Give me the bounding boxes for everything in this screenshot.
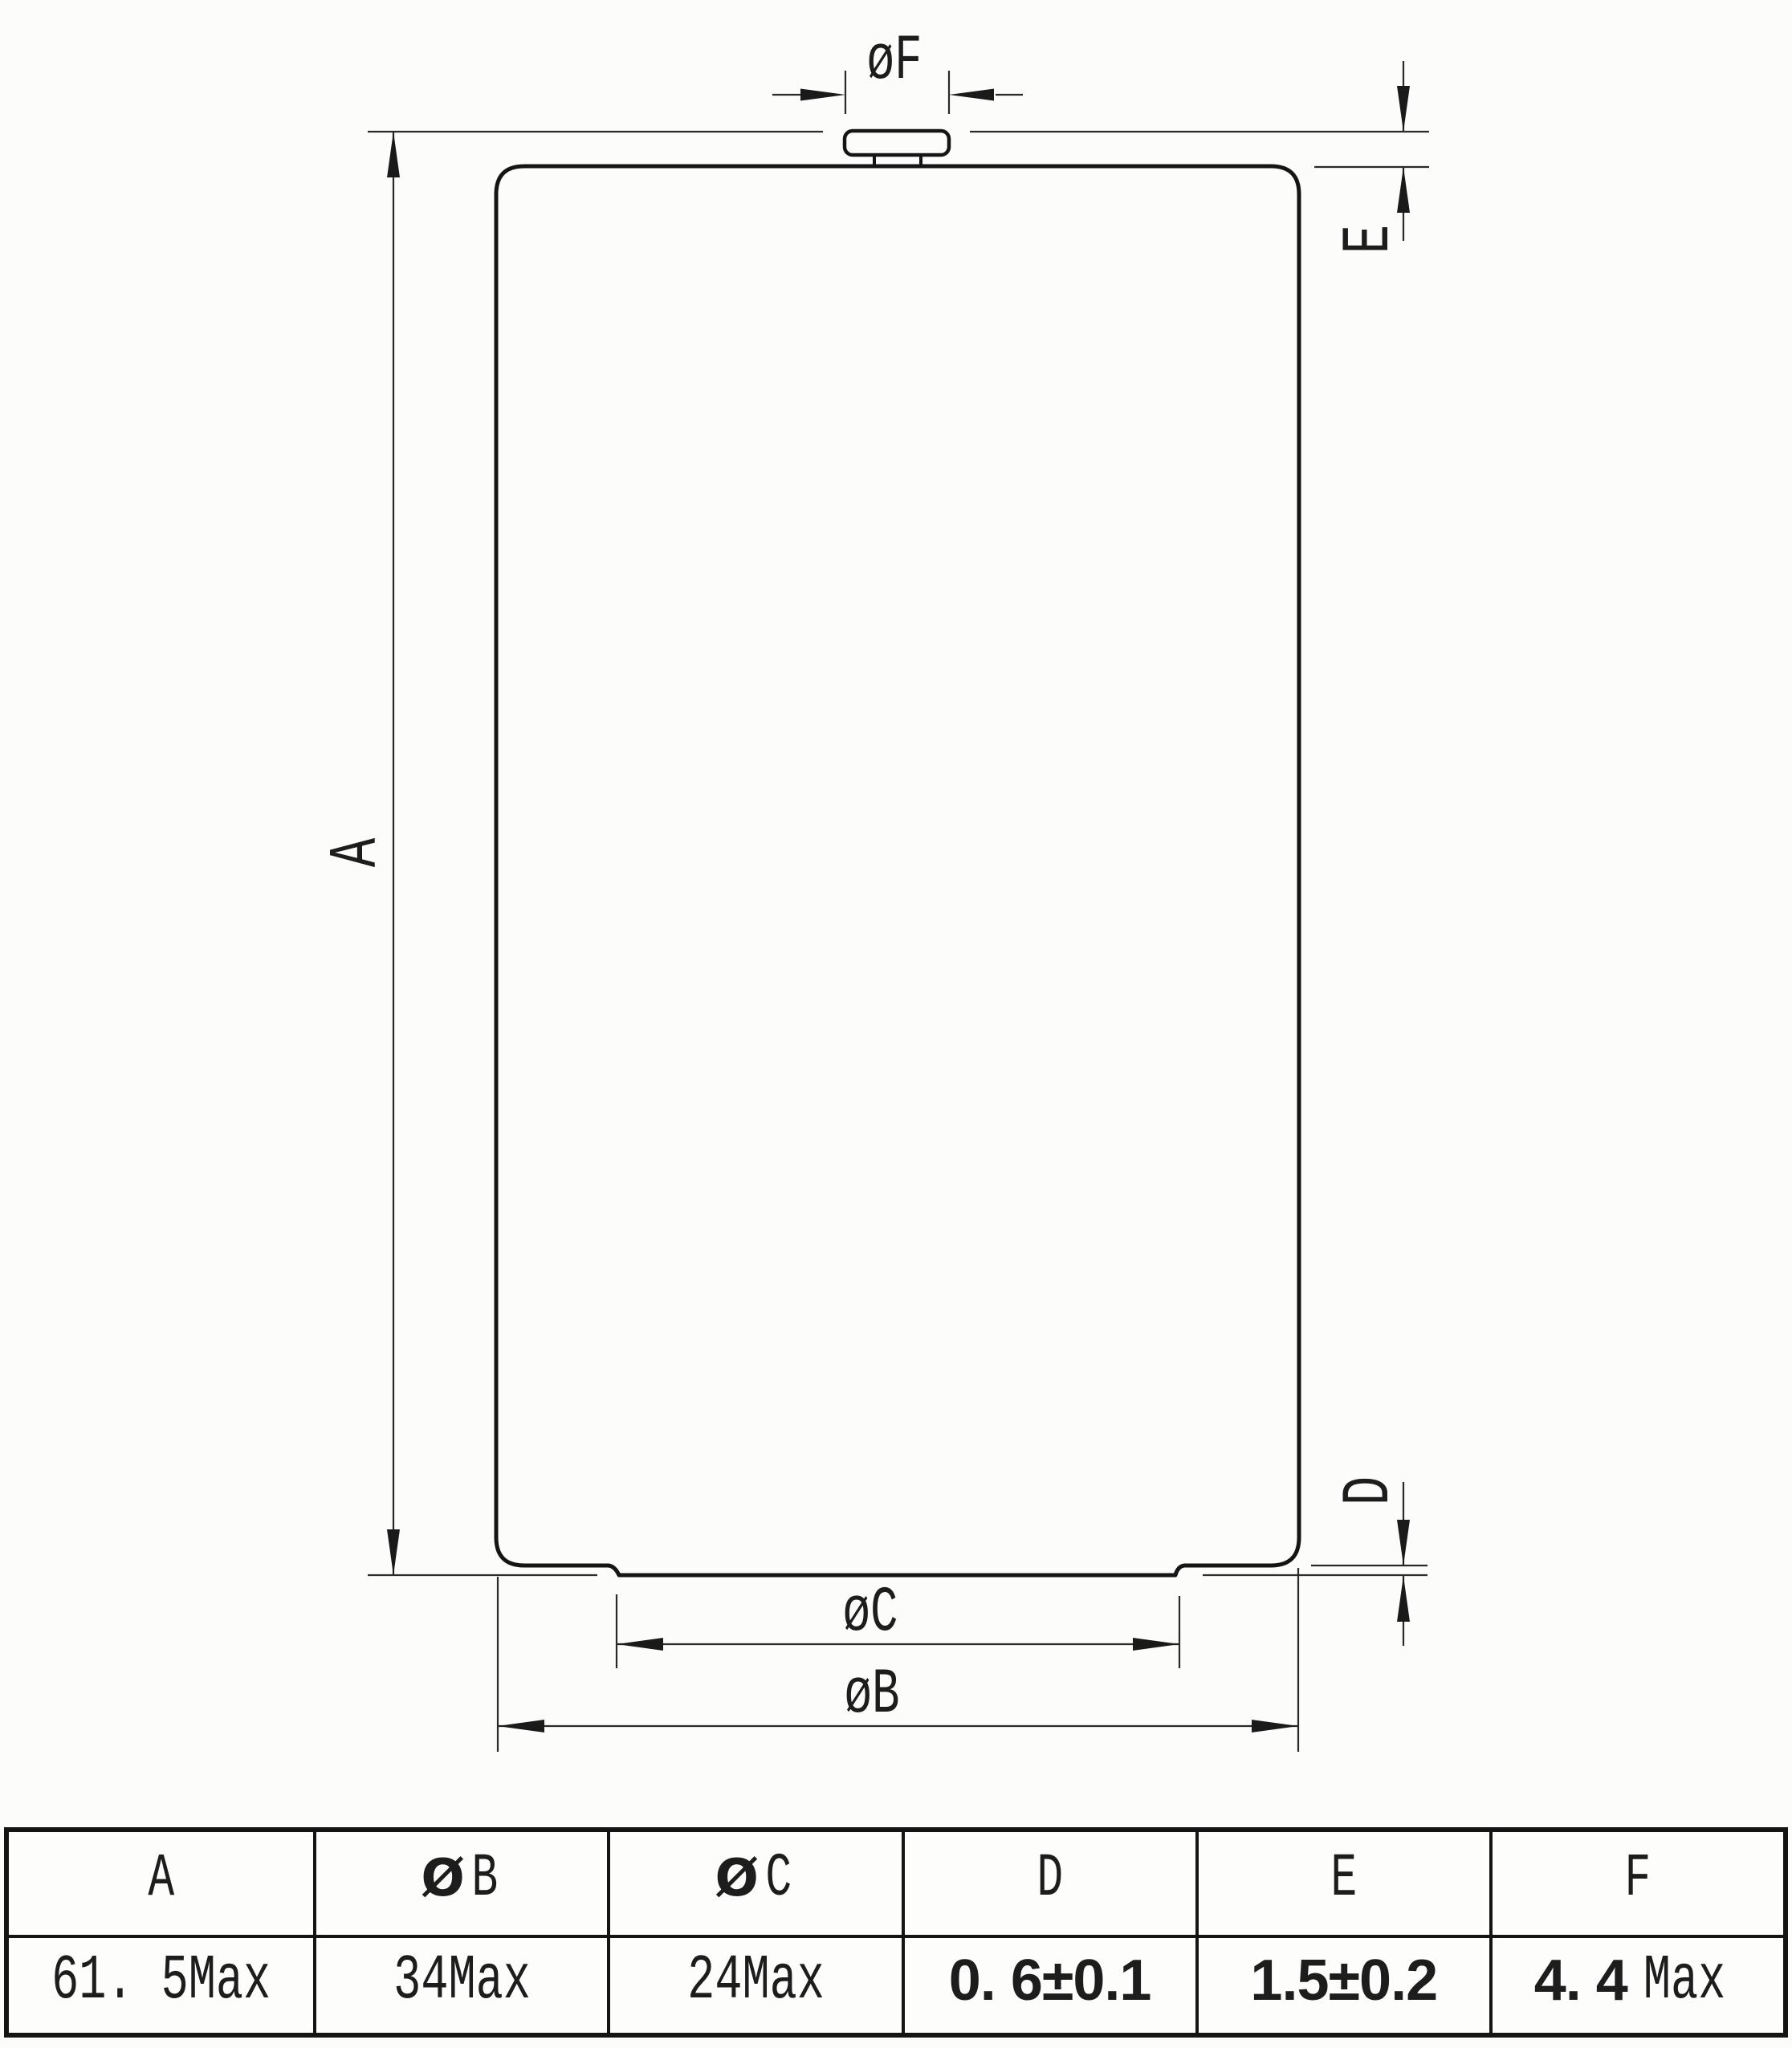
- dimension-C: øC: [617, 1576, 1179, 1668]
- value-unit: Max: [1643, 1944, 1725, 2017]
- arrowhead-left-icon: [617, 1638, 663, 1651]
- header-label: F: [1624, 1844, 1651, 1913]
- battery-outline-drawing: øF A E D øC: [0, 0, 1792, 1827]
- header-label: A: [148, 1844, 174, 1913]
- spec-value-b: 34Max: [313, 1935, 607, 2033]
- value-text: 61. 5Max: [51, 1944, 271, 2017]
- arrowhead-down-icon: [387, 1529, 400, 1575]
- spec-header-f: F: [1489, 1832, 1783, 1935]
- label-D: D: [1331, 1476, 1407, 1505]
- label-dia-B: øB: [844, 1658, 899, 1731]
- arrowhead-up-icon: [387, 132, 400, 177]
- arrowhead-up-icon: [1397, 1576, 1410, 1622]
- spec-value-c: 24Max: [607, 1935, 901, 2033]
- header-label: C: [765, 1844, 792, 1913]
- arrowhead-right-icon: [800, 89, 845, 101]
- header-label: E: [1330, 1844, 1357, 1913]
- dimension-E: E: [1314, 61, 1429, 254]
- spec-header-d: D: [902, 1832, 1195, 1935]
- spec-value-d: 0. 6±0.1: [902, 1935, 1195, 2033]
- positive-terminal-button: [845, 131, 949, 155]
- value-text: 24Max: [687, 1944, 825, 2017]
- arrowhead-right-icon: [1252, 1720, 1298, 1732]
- diameter-symbol-icon: Ø: [715, 1849, 758, 1908]
- arrowhead-down-icon: [1397, 1520, 1410, 1566]
- battery-dimension-drawing-page: øF A E D øC: [0, 0, 1792, 2048]
- spec-header-e: E: [1195, 1832, 1489, 1935]
- value-text: 1.5±0.2: [1250, 1948, 1437, 2013]
- spec-value-a: 61. 5Max: [9, 1935, 313, 2033]
- battery-body: [496, 131, 1299, 1575]
- spec-header-c: Ø C: [607, 1832, 901, 1935]
- arrowhead-left-icon: [498, 1720, 544, 1732]
- arrowhead-down-icon: [1397, 86, 1410, 132]
- dimension-F: øF: [772, 24, 1023, 114]
- spec-value-e: 1.5±0.2: [1195, 1935, 1489, 2033]
- arrowhead-right-icon: [1133, 1638, 1179, 1651]
- label-E: E: [1331, 225, 1407, 254]
- value-number: 4. 4: [1534, 1948, 1627, 2013]
- header-label: B: [471, 1844, 498, 1913]
- arrowhead-up-icon: [1397, 167, 1410, 213]
- arrowhead-left-icon: [949, 89, 994, 101]
- battery-case-outline: [496, 166, 1299, 1575]
- label-dia-C: øC: [842, 1576, 898, 1649]
- label-dia-F: øF: [866, 24, 922, 97]
- header-label: D: [1037, 1844, 1063, 1913]
- diameter-symbol-icon: Ø: [421, 1849, 464, 1908]
- value-text: 0. 6±0.1: [949, 1948, 1151, 2013]
- spec-header-b: Ø B: [313, 1832, 607, 1935]
- value-text: 34Max: [393, 1944, 531, 2017]
- spec-table: A Ø B Ø C D E F 61. 5Max 34Max 24Max 0. …: [4, 1827, 1788, 2038]
- spec-value-f: 4. 4 Max: [1489, 1935, 1783, 2033]
- label-A: A: [319, 838, 395, 867]
- spec-header-a: A: [9, 1832, 313, 1935]
